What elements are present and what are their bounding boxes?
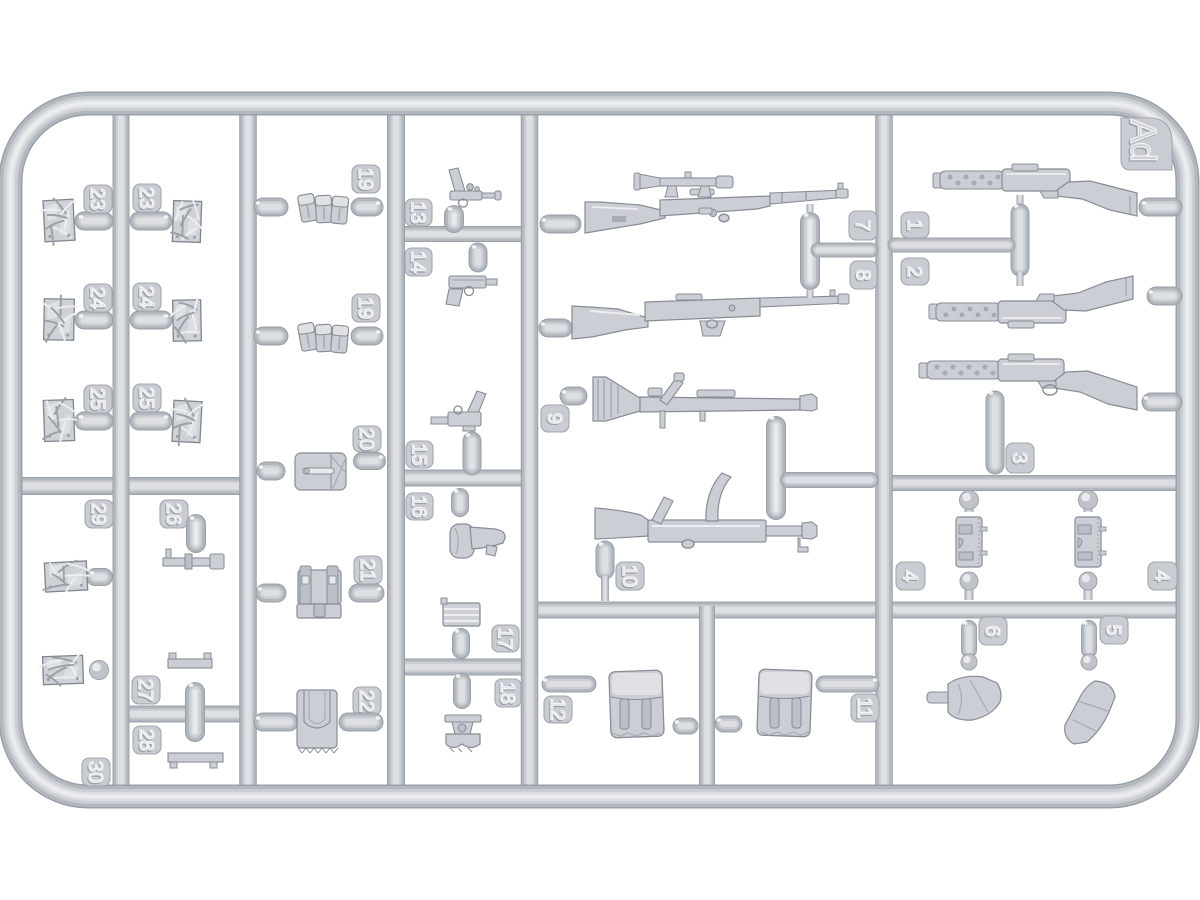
svg-text:18: 18 bbox=[496, 682, 518, 704]
svg-text:17: 17 bbox=[494, 627, 516, 649]
svg-text:11: 11 bbox=[853, 698, 875, 719]
svg-text:26: 26 bbox=[162, 503, 184, 525]
svg-text:12: 12 bbox=[546, 698, 568, 720]
svg-text:21: 21 bbox=[356, 559, 378, 581]
svg-text:23: 23 bbox=[135, 187, 157, 209]
svg-text:19: 19 bbox=[354, 168, 376, 190]
svg-text:10: 10 bbox=[618, 565, 640, 587]
svg-text:22: 22 bbox=[355, 690, 377, 712]
svg-text:4: 4 bbox=[899, 570, 921, 581]
svg-text:19: 19 bbox=[354, 297, 376, 319]
svg-text:29: 29 bbox=[87, 503, 109, 525]
svg-text:1: 1 bbox=[903, 219, 925, 230]
svg-text:Ad: Ad bbox=[1123, 119, 1164, 161]
svg-text:24: 24 bbox=[86, 287, 108, 309]
svg-text:23: 23 bbox=[86, 188, 108, 210]
svg-text:2: 2 bbox=[903, 266, 925, 277]
svg-text:28: 28 bbox=[135, 729, 157, 751]
svg-text:9: 9 bbox=[543, 413, 565, 424]
svg-text:6: 6 bbox=[981, 625, 1003, 636]
svg-text:14: 14 bbox=[407, 251, 429, 273]
svg-text:24: 24 bbox=[135, 286, 157, 308]
svg-text:15: 15 bbox=[408, 443, 430, 465]
svg-text:5: 5 bbox=[1102, 624, 1124, 635]
svg-text:13: 13 bbox=[407, 201, 429, 223]
svg-text:4: 4 bbox=[1151, 570, 1173, 581]
svg-text:20: 20 bbox=[355, 428, 377, 450]
svg-text:25: 25 bbox=[86, 388, 108, 410]
svg-text:3: 3 bbox=[1008, 452, 1030, 463]
svg-text:16: 16 bbox=[408, 495, 430, 517]
svg-text:8: 8 bbox=[852, 269, 874, 280]
svg-text:30: 30 bbox=[84, 761, 106, 783]
svg-text:27: 27 bbox=[134, 679, 156, 701]
svg-text:7: 7 bbox=[851, 220, 873, 231]
svg-text:25: 25 bbox=[135, 387, 157, 409]
